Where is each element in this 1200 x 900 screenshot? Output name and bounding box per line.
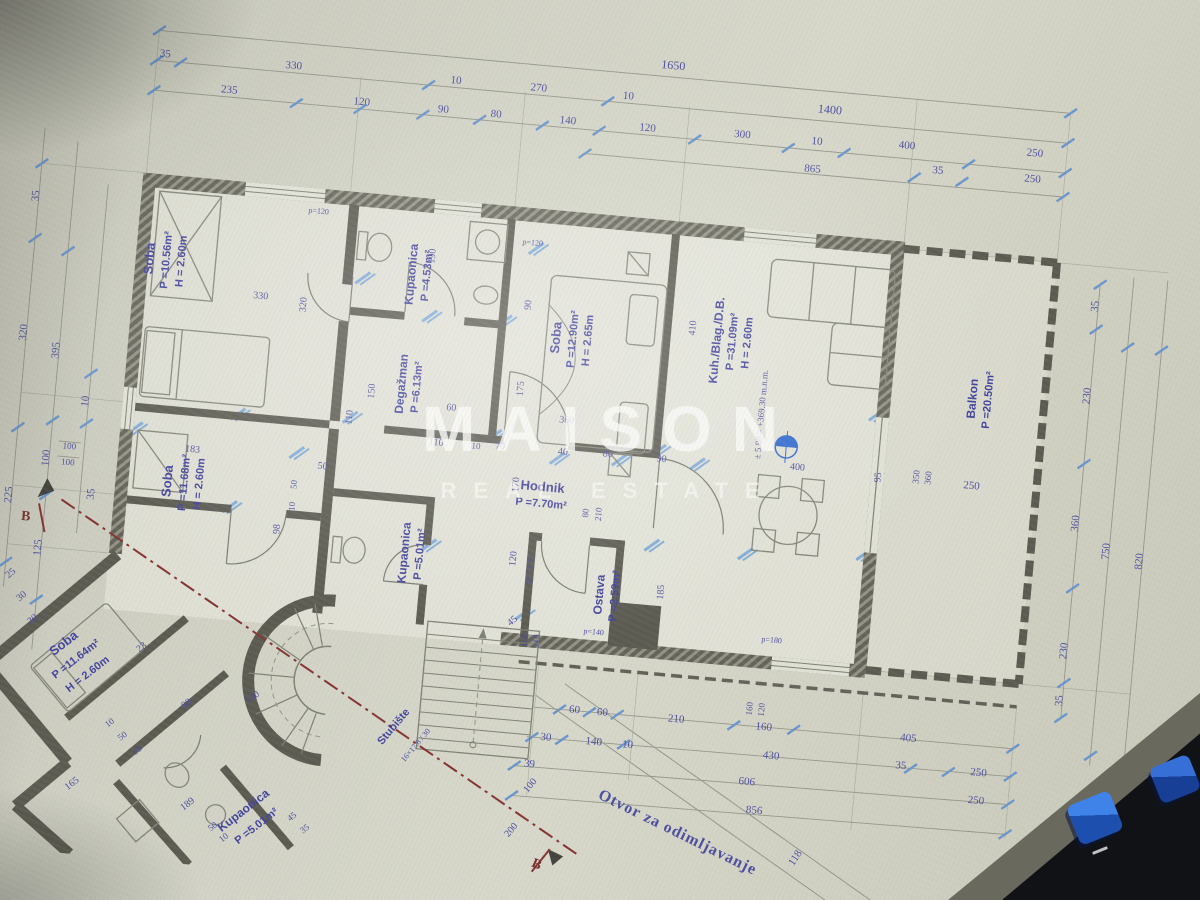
dimension-label: 80	[602, 448, 613, 460]
dimension-label: 10	[103, 716, 117, 730]
dimension-label: 30	[14, 589, 29, 604]
dimension-label: 120	[756, 702, 767, 717]
floorplan-drawing: 1650353301027010140023512090801401203001…	[0, 0, 1200, 900]
dimension-label: 10	[471, 440, 481, 451]
dimension-label: 360	[559, 414, 575, 426]
dimension-label: 10	[79, 395, 92, 408]
dimension-label: 100	[519, 632, 530, 647]
dimension-label: 320	[297, 297, 309, 313]
dimension-label: 100	[61, 456, 76, 467]
dimension-label: 400	[789, 461, 805, 473]
dimension-label: 1400	[817, 101, 842, 117]
dimension-label: 90	[656, 453, 667, 465]
dimension-label: 60	[569, 703, 582, 716]
dimension-label: 210	[531, 633, 542, 648]
dimension-label: 360	[1069, 514, 1082, 532]
dimension-label: p=120	[522, 237, 543, 248]
dimension-label: 10	[286, 501, 297, 511]
dimension-label: 90	[523, 300, 535, 311]
dimension-label: 250	[1026, 147, 1044, 160]
dimension-label: 110	[343, 409, 355, 425]
dimension-label: 98	[271, 524, 283, 535]
dimension-label: 183	[185, 443, 201, 455]
dimension-label: 10	[622, 738, 635, 751]
dimension-label: 35	[29, 189, 42, 202]
dimension-label: 10	[450, 74, 463, 87]
text-label: Soba	[158, 464, 176, 498]
dimension-label: 40	[557, 446, 568, 458]
dimension-label: 118	[786, 848, 805, 868]
dimension-label: 270	[530, 81, 548, 94]
dimension-label: 200	[502, 821, 520, 840]
dimension-label: 300	[734, 128, 752, 141]
dimension-label: 160	[744, 701, 755, 716]
dimension-label: 95	[872, 472, 884, 483]
dimension-label: 10	[811, 135, 824, 148]
dimension-label: 250	[1024, 172, 1042, 185]
dimension-label: 70	[495, 441, 506, 453]
dimension-label: 320	[17, 323, 30, 341]
dimension-label: 120	[353, 95, 371, 108]
dimension-label: 189	[178, 795, 197, 813]
dimension-label: 250	[970, 766, 988, 779]
text-label: Soba	[140, 241, 158, 275]
dimension-label: 165	[63, 775, 82, 793]
dimension-label: 110	[428, 437, 444, 449]
dimension-label: 80	[490, 108, 503, 121]
dimension-label: 606	[738, 775, 756, 788]
dimension-label: 865	[804, 162, 822, 175]
dimension-label: 330	[253, 290, 269, 302]
dimension-label: 35	[159, 48, 172, 61]
dimension-label: 35	[1089, 300, 1102, 313]
dimension-label: 210	[593, 507, 604, 522]
dimension-label: 45	[285, 809, 299, 823]
dimension-label: 50	[288, 479, 299, 489]
dimension-label: 856	[745, 804, 763, 817]
dimension-label: 750	[1099, 542, 1112, 560]
text-label: Stubište	[375, 706, 412, 747]
dimension-label: p=140	[583, 626, 604, 637]
dimension-label: 330	[285, 59, 303, 72]
dimension-label: 35	[932, 164, 945, 177]
dimension-label: p=120	[308, 206, 329, 217]
dimension-label: 35	[1053, 694, 1066, 707]
dimension-label: 210	[667, 712, 685, 725]
dimension-label: 820	[1133, 552, 1146, 570]
dimension-label: 405	[900, 731, 918, 744]
text-label: Otvor za odimljavanje	[595, 786, 759, 878]
dimension-label: p=180	[761, 635, 782, 646]
dimension-label: 100	[62, 440, 77, 451]
dimension-label: 10	[622, 90, 635, 103]
dimension-label: 235	[221, 83, 239, 96]
dimension-label: 140	[585, 735, 603, 748]
floorplan-photo: 1650353301027010140023512090801401203001…	[0, 0, 1200, 900]
dimension-label: 120	[507, 551, 519, 567]
dimension-label: 160	[755, 720, 773, 733]
dimension-label: 60	[596, 706, 609, 719]
text-label: B	[20, 509, 31, 525]
dimension-label: 90	[437, 103, 450, 116]
text-label: 16×17.8 / 30	[399, 727, 432, 764]
dimension-label: 430	[762, 749, 780, 762]
dimension-label: 35	[85, 488, 98, 501]
dimension-label: 25	[3, 566, 18, 581]
dimension-label: 230	[1080, 387, 1093, 405]
floorplan-svg: 1650353301027010140023512090801401203001…	[0, 0, 1200, 900]
dimension-label: 35	[298, 822, 312, 836]
dimension-label: 35	[895, 759, 908, 772]
dimension-label: 230	[1057, 642, 1070, 660]
dimension-label: 30	[540, 731, 553, 744]
dimension-label: 250	[963, 479, 981, 492]
dimension-label: 360	[922, 470, 933, 485]
dimension-label: 350	[910, 469, 921, 484]
text-label: Soba	[547, 320, 565, 354]
dimension-label: 39	[523, 758, 536, 771]
dimension-label: 140	[559, 114, 577, 127]
dimension-label: 1650	[661, 57, 686, 73]
dimension-label: 50	[317, 461, 328, 473]
dimension-label: 225	[2, 485, 15, 503]
dimension-label: 100	[39, 449, 52, 467]
dimension-label: 410	[687, 320, 699, 336]
dimension-label: 395	[49, 341, 62, 359]
dimension-label: 150	[366, 383, 378, 399]
dimension-label: 80	[580, 508, 591, 518]
dimension-label: 60	[446, 402, 457, 414]
dimension-label: 250	[967, 794, 985, 807]
dimension-label: 50	[116, 729, 130, 743]
dimension-label: 185	[655, 584, 667, 600]
dimension-label: 175	[515, 381, 527, 397]
dimension-label: 125	[31, 538, 44, 556]
dimension-label: 100	[521, 776, 539, 795]
dimension-label: 120	[639, 121, 657, 134]
dimension-label: 400	[898, 139, 916, 152]
